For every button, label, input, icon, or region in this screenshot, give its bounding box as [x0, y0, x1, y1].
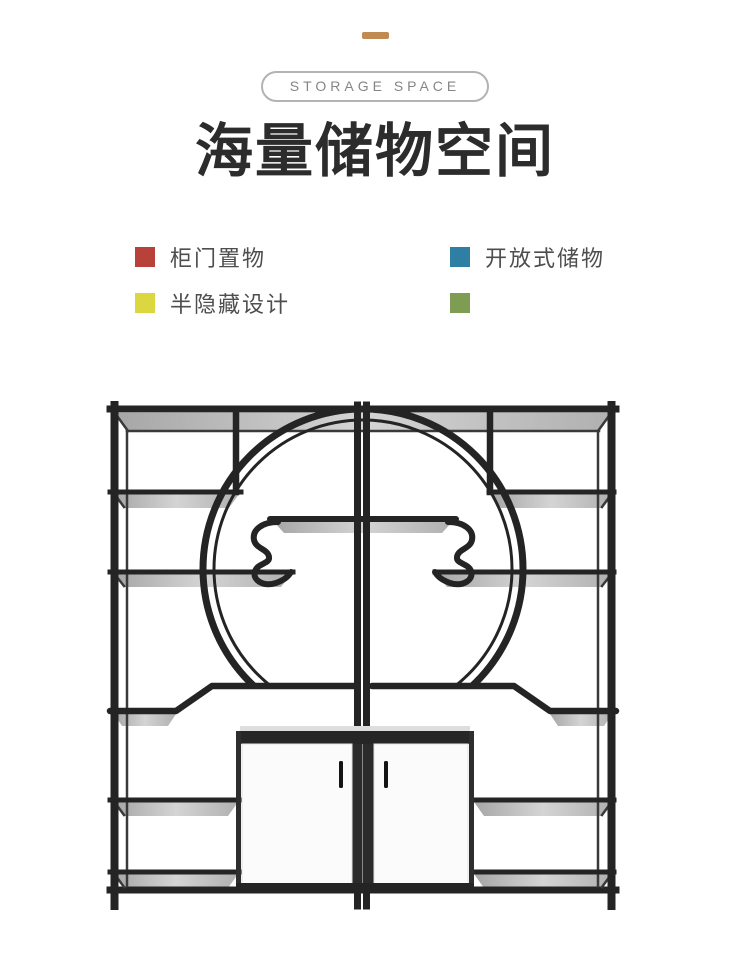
cabinet-left-edge — [236, 731, 241, 888]
cabinet-right-door — [374, 744, 468, 885]
cabinet — [236, 726, 474, 892]
cabinet-left-door — [242, 744, 352, 885]
cabinet-bottom-bar — [236, 883, 474, 892]
left-door-handle-icon — [339, 761, 343, 788]
product-image-moon-gate-shelf — [0, 0, 750, 963]
cabinet-top-bar — [236, 731, 474, 744]
product-page: { "page": { "background": "#ffffff" }, "… — [0, 0, 750, 963]
right-door-handle-icon — [384, 761, 388, 788]
cabinet-right-edge — [469, 731, 474, 888]
